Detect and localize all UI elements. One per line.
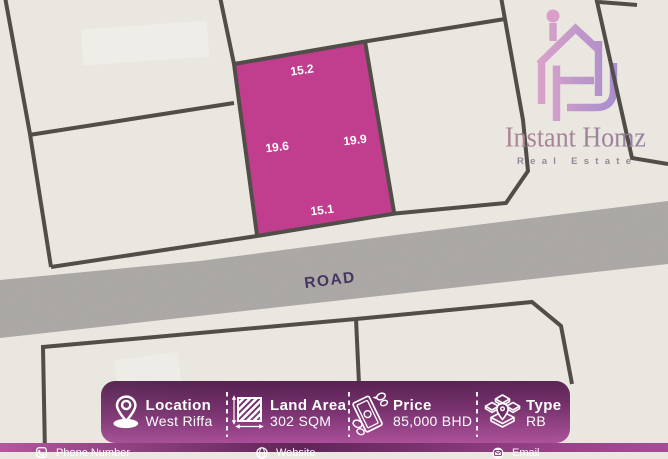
svg-text:Real Estate: Real Estate [517,156,636,167]
svg-text:19.6: 19.6 [265,139,290,156]
svg-text:15.1: 15.1 [310,202,335,219]
svg-text:19.9: 19.9 [343,132,368,149]
svg-text:Instant Homz: Instant Homz [505,122,646,154]
